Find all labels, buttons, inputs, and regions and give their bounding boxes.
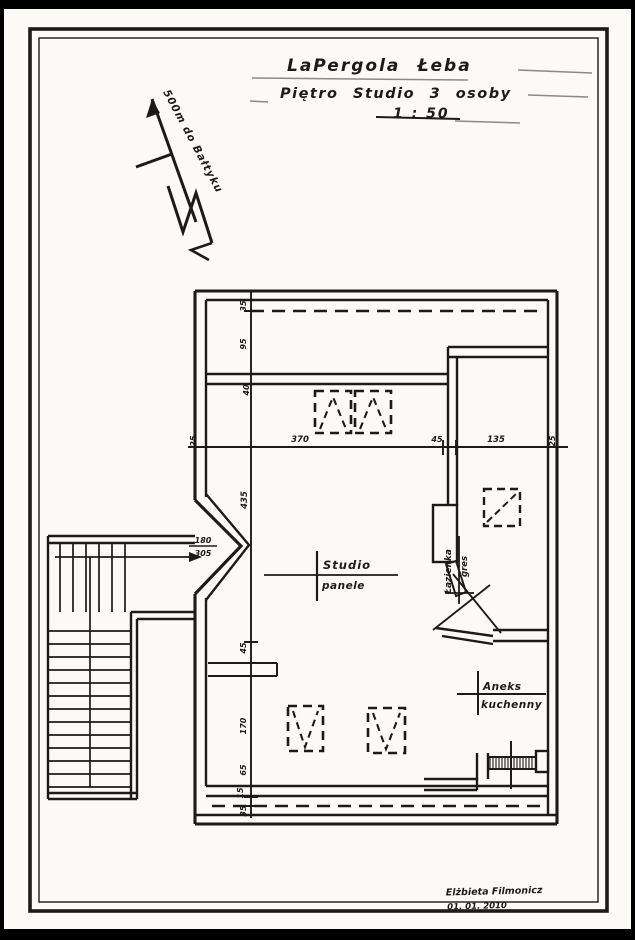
dim-v-7: 15 [236, 787, 245, 799]
dim-v-1: 95 [239, 338, 248, 350]
title-block: LaPergola Łeba Piętro Studio 3 osoby 1 :… [250, 56, 592, 123]
dimension-chain-horizontal: 25 370 45 135 25 [188, 435, 568, 455]
scanned-floor-plan-page: LaPergola Łeba Piętro Studio 3 osoby 1 :… [0, 0, 635, 940]
dim-v-0: 35 [239, 300, 248, 312]
stairs [48, 536, 202, 799]
dim-v-5: 170 [239, 717, 248, 734]
kitchen-line2: kuchenny [481, 699, 543, 711]
studio-name: Studio [323, 558, 371, 572]
entry-bay-inner [206, 494, 249, 600]
drawing-scale: 1 : 50 [393, 106, 450, 122]
bathroom-bottom-wall [436, 628, 548, 644]
north-n-glyph [168, 186, 212, 243]
dim-h-1: 370 [291, 435, 309, 445]
north-arrow: 500m do Bałtyku [136, 88, 225, 260]
room-label-studio: Studio panele [264, 551, 398, 601]
room-label-kitchen: Aneks kuchenny [457, 671, 546, 715]
dimension-chain-vertical: 35 95 40 435 45 170 65 15 35 [236, 291, 258, 818]
bathroom-finish: gres [460, 556, 470, 577]
page-frame [30, 29, 607, 911]
entry-dim-top: 180 [195, 536, 212, 545]
signature-date: 01. 01. 2010 [447, 901, 507, 913]
stair-walk-line [55, 557, 189, 787]
furniture-top [315, 391, 391, 433]
counter-end-block [536, 751, 548, 772]
dim-v-6: 65 [239, 764, 248, 776]
drawing-title: LaPergola Łeba [287, 56, 472, 76]
kitchen-line1: Aneks [482, 681, 521, 693]
roof-slope-dashed-lines [212, 311, 540, 806]
entry-bay-outer [195, 500, 241, 594]
dim-h-4: 25 [548, 435, 557, 447]
drawing-subtitle: Piętro Studio 3 osoby [280, 86, 512, 102]
furniture-bottom [288, 706, 405, 753]
dim-h-3: 135 [487, 435, 505, 445]
dim-v-2: 40 [242, 384, 251, 397]
bathroom-walls [448, 347, 548, 505]
partition-stub [208, 663, 277, 676]
dim-h-2: 45 [430, 435, 443, 444]
north-note: 500m do Bałtyku [160, 88, 225, 195]
dim-v-3: 435 [240, 491, 250, 510]
room-label-bathroom: Łazienka gres [444, 536, 474, 604]
bathroom-name: Łazienka [444, 549, 454, 595]
studio-finish: panele [321, 580, 365, 592]
exterior-walls [195, 291, 557, 824]
signature-block: Elżbieta Filmonicz 01. 01. 2010 [446, 885, 544, 913]
signature-name: Elżbieta Filmonicz [446, 885, 543, 899]
dim-v-4: 45 [239, 642, 248, 655]
dim-v-8: 35 [239, 805, 248, 817]
floor-plan: Studio panele Łazienka gres Aneks kuchen… [188, 291, 568, 824]
dim-h-0: 25 [189, 435, 198, 447]
stair-treads-upper [60, 543, 125, 612]
north-arrow-tail [191, 243, 212, 260]
bathroom-fixture [484, 489, 520, 526]
kitchen-counter [424, 741, 548, 790]
